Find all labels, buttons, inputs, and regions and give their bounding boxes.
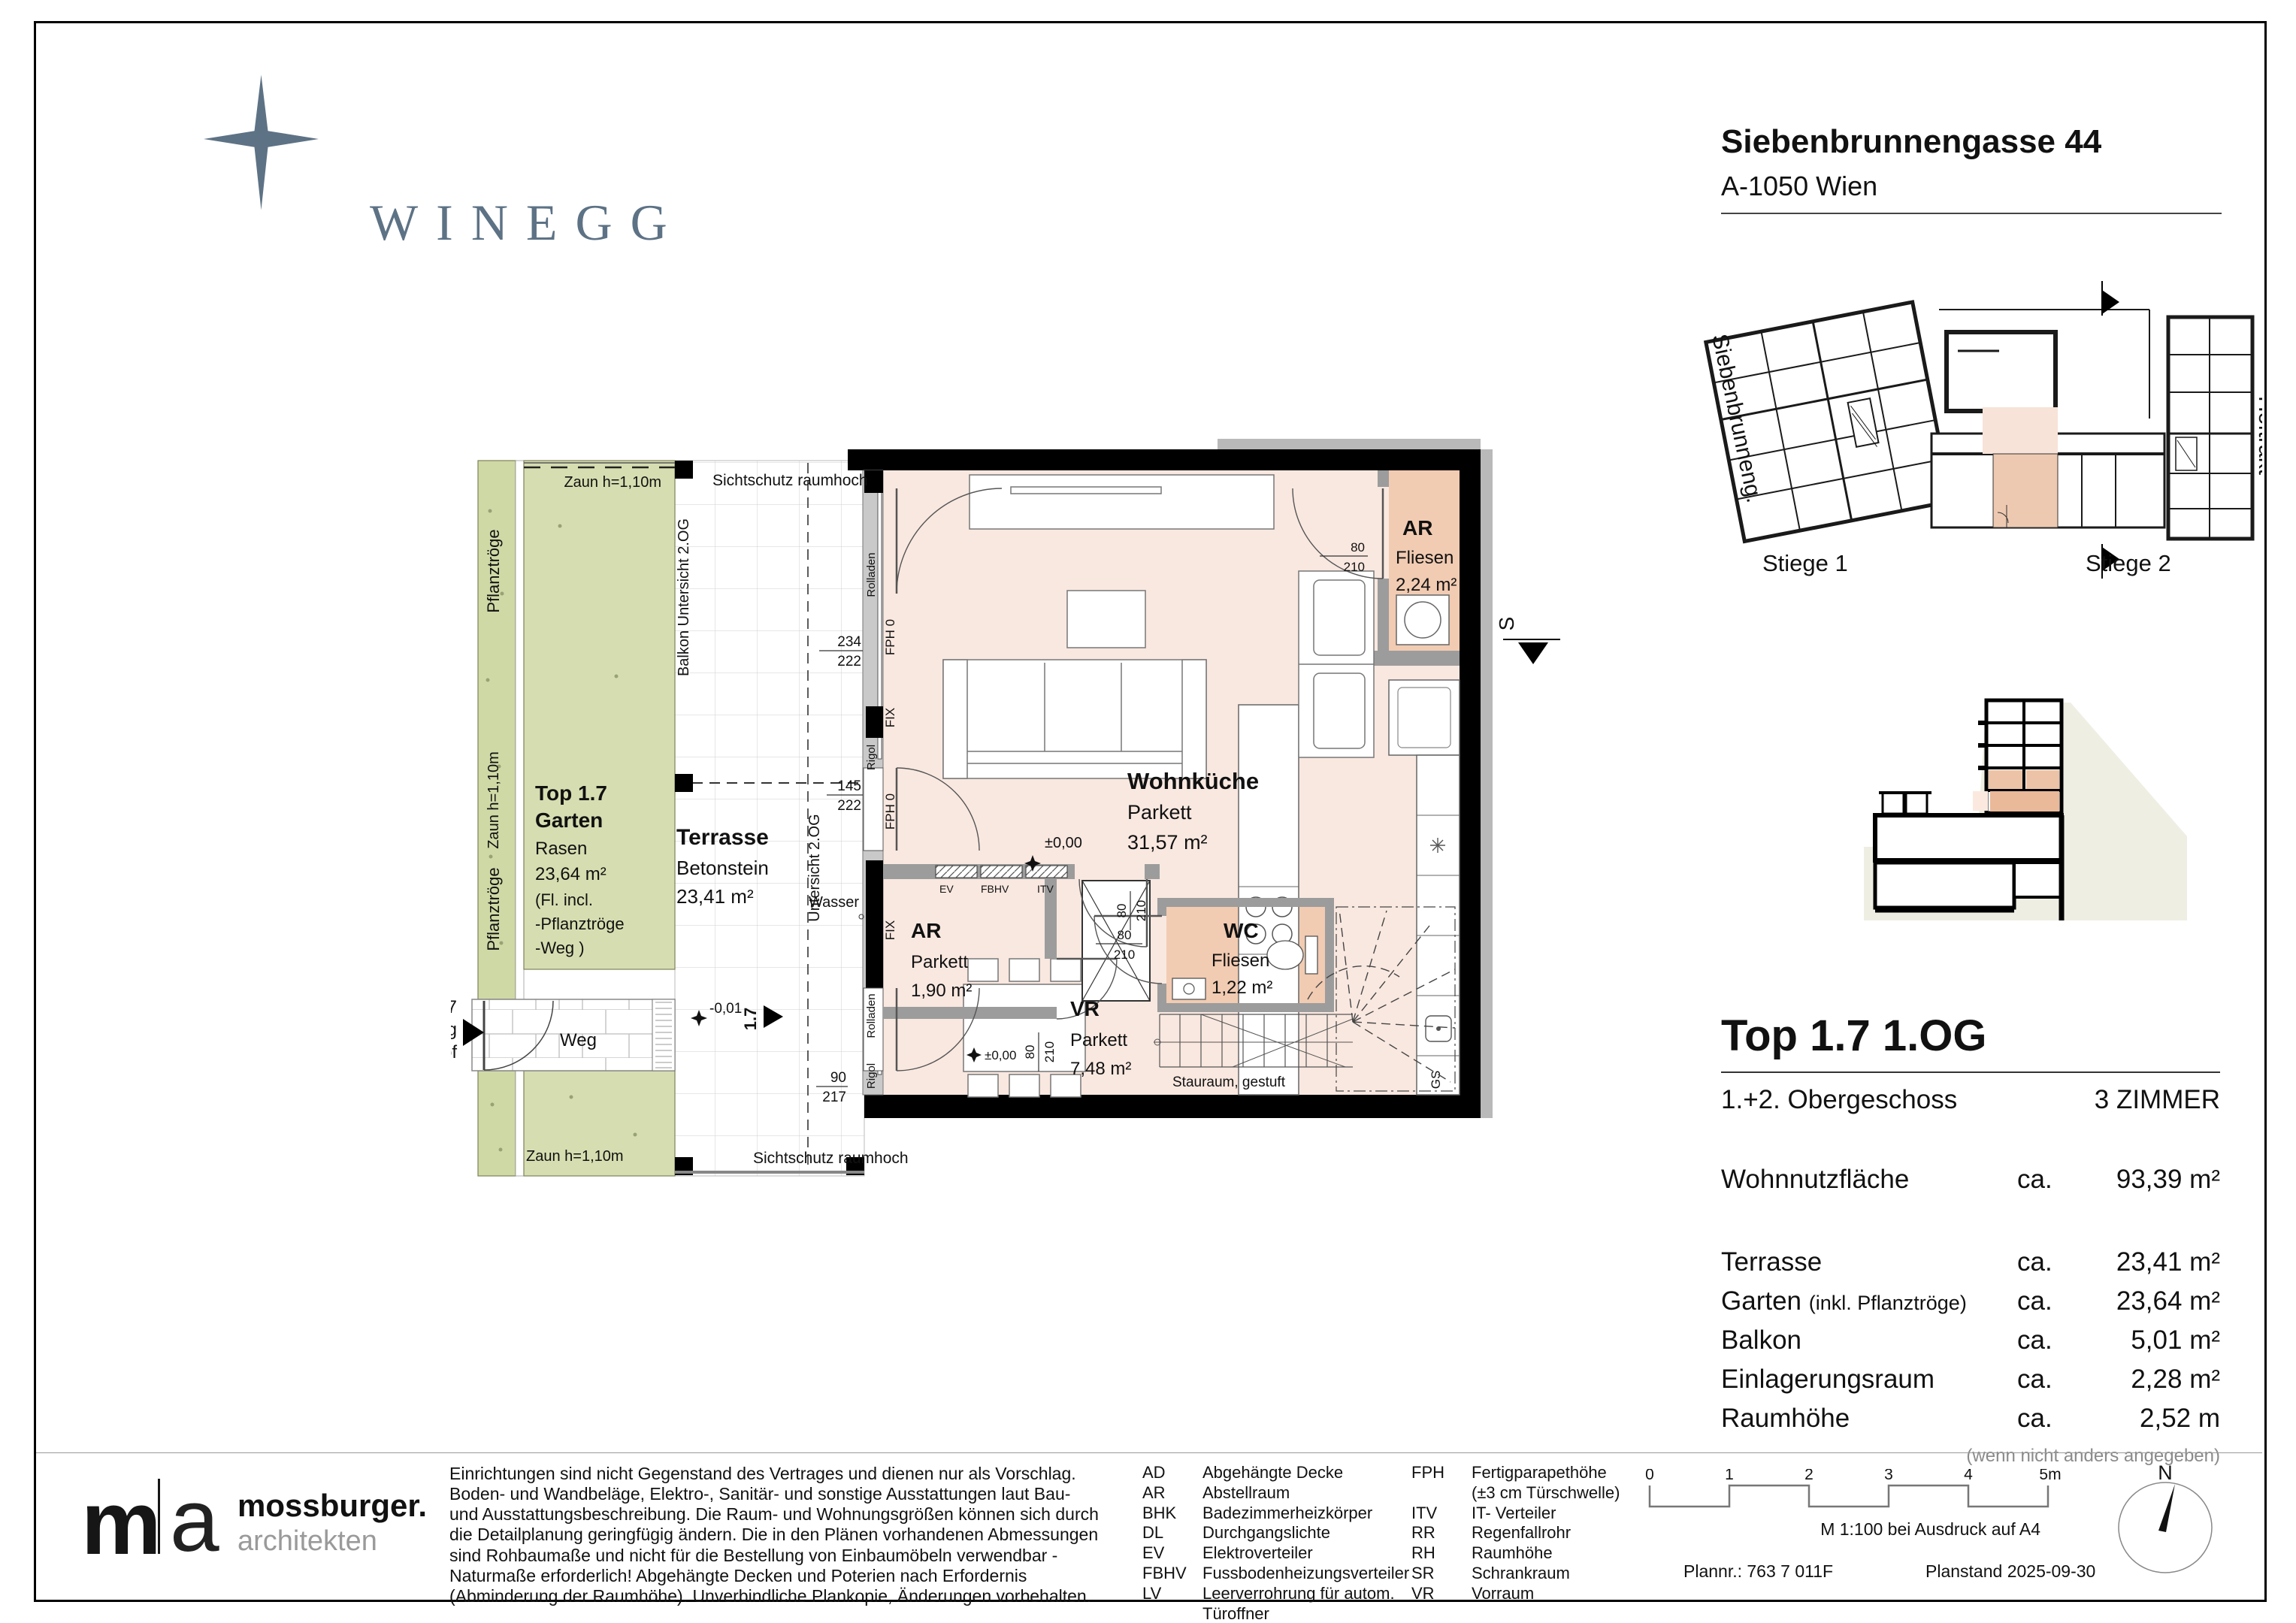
dim-80-arl: 80 [1023, 1045, 1037, 1059]
wc-area-label: 1,22 m² [1212, 978, 1272, 998]
legend-item: LVLeerverrohrung für autom. Türoffner [1142, 1584, 1458, 1623]
terrasse-label: Terrasse [676, 825, 769, 850]
ar-lower-area-label: 1,90 m² [911, 981, 972, 1001]
zugang-line3: von Innenhof [451, 1042, 457, 1062]
ar-lower-label: AR [911, 919, 941, 942]
dim-210-wc: 210 [1114, 948, 1135, 962]
architect-name: mossburger. [237, 1488, 427, 1524]
zugang-line2: Zugang [451, 1020, 457, 1040]
sideboard [970, 475, 1274, 529]
winegg-logo: WINEGG [105, 71, 631, 237]
logo-bar [158, 1479, 160, 1554]
scale-tick-4: 4 [1964, 1469, 1973, 1483]
vr-label: VR [1070, 997, 1100, 1020]
fbhv-label: FBHV [981, 883, 1009, 895]
dim-145: 145 [837, 778, 861, 794]
table-row: Garten (inkl. Pflanztröge) ca. 23,64 m² [1721, 1282, 2220, 1321]
area-value: 5,01 m² [2077, 1321, 2220, 1360]
wohnkueche-label: Wohnküche [1127, 768, 1259, 794]
table-row: Wohnnutzfläche ca. 93,39 m² [1721, 1160, 2220, 1199]
zaun-left-label: Zaun h=1,10m [486, 751, 502, 849]
scale-tick-5: 5m [2039, 1469, 2061, 1483]
area-value: 23,64 m² [2077, 1282, 2220, 1321]
dim-210-vr: 210 [1134, 900, 1148, 921]
level-zero-label: ±0,00 [1045, 835, 1082, 851]
dim-222b: 222 [837, 798, 861, 814]
site-stiege2-label: Stiege 2 [2086, 550, 2171, 576]
area-label: Garten (inkl. Pflanztröge) [1721, 1282, 2017, 1321]
address-line2: A-1050 Wien [1721, 171, 2222, 214]
level-minus-label: -0,01 [709, 1001, 742, 1017]
lounge-chairs [1299, 571, 1374, 757]
vr-floor-label: Parkett [1070, 1030, 1127, 1050]
scale-tick-0: 0 [1645, 1469, 1654, 1483]
legend-item: RRRegenfallrohr [1411, 1523, 1637, 1543]
logo-m: m [81, 1471, 162, 1575]
wohnkueche-area-label: 31,57 m² [1127, 831, 1208, 854]
coffee-table [1067, 591, 1145, 648]
pflanztroege-bottom-label: Pflanztröge [484, 867, 503, 951]
ar-lower-floor-label: Parkett [911, 952, 968, 972]
sichtschutz-bottom-label: Sichtschutz raumhoch [753, 1150, 909, 1167]
site-block-stiege2 [2168, 317, 2252, 539]
cold-appliance-icon [1430, 838, 1445, 853]
pflanztroege-top-label: Pflanztröge [484, 529, 503, 612]
scale-bar: 0 1 2 3 4 5m [1642, 1469, 2063, 1517]
address-line1: Siebenbrunnengasse 44 [1721, 124, 2222, 160]
area-label: Einlagerungsraum [1721, 1360, 2017, 1399]
zaun-bottom-label: Zaun h=1,10m [526, 1148, 624, 1165]
legend-item: DLDurchgangslichte [1142, 1523, 1458, 1543]
shaft [1082, 881, 1150, 1001]
rigol-label-1: Rigol [865, 745, 878, 770]
wc-label: WC [1224, 919, 1259, 942]
legend-item: FBHVFussbodenheizungsverteiler [1142, 1564, 1458, 1584]
plan-sheet: WINEGG Siebenbrunnengasse 44 A-1050 Wien [0, 0, 2296, 1623]
legend-item: EVElektroverteiler [1142, 1543, 1458, 1564]
legend-column-2: FPHFertigparapethöhe (±3 cm Türschwelle)… [1411, 1463, 1637, 1604]
fix-label-1: FIX [883, 708, 897, 727]
section-marker-icons [2102, 281, 2119, 579]
floor-plan: GS [451, 421, 1563, 1195]
garten-label: Garten [535, 808, 603, 832]
wohnkueche-floor-label: Parkett [1127, 801, 1192, 824]
architect-subtitle: architekten [237, 1525, 377, 1558]
area-label: Raumhöhe [1721, 1399, 2017, 1438]
rigol-label-2: Rigol [865, 1063, 878, 1089]
terrasse-area-label: 23,41 m² [676, 885, 754, 908]
zugang-line1: Top 1.7 [451, 997, 457, 1017]
rasen-label: Rasen [535, 839, 587, 859]
ar-upper-area-label: 2,24 m² [1396, 575, 1457, 595]
weg-label: Weg [560, 1030, 597, 1050]
legend-item: FPHFertigparapethöhe [1411, 1463, 1637, 1483]
tv [1011, 487, 1161, 494]
fix-label-2: FIX [883, 920, 897, 940]
unit-title: Top 1.7 1.OG [1721, 1011, 2220, 1073]
site-plan: Siebenbrunneng. Hoftrakt Stiege 1 Stiege… [1683, 280, 2262, 580]
dim-210-ar-upper: 210 [1344, 560, 1365, 574]
rolladen-label-2: Rolladen [865, 993, 878, 1038]
scale-tick-3: 3 [1884, 1469, 1893, 1483]
legend-item: SRSchrankraum [1411, 1564, 1637, 1584]
unit-info-panel: Top 1.7 1.OG 1.+2. Obergeschoss 3 ZIMMER… [1721, 1011, 2220, 1467]
star-glyph [204, 75, 319, 210]
wasser-label: Wasser [809, 894, 859, 911]
balkon-untersicht-label: Balkon Untersicht 2.OG [676, 518, 692, 676]
legend-item: ITVIT- Verteiler [1411, 1504, 1637, 1524]
legend-column-1: ADAbgehängte Decke ARAbstellraum BHKBade… [1142, 1463, 1458, 1623]
architect-logo: m a mossburger. architekten [81, 1479, 434, 1569]
dim-80-wc: 80 [1118, 928, 1132, 942]
garten-note3: -Weg ) [535, 938, 585, 957]
fph-label-2: FPH 0 [883, 793, 897, 830]
wc-floor-label: Fliesen [1212, 951, 1269, 971]
stauraum-label: Stauraum, gestuft [1172, 1074, 1286, 1090]
area-value: 2,28 m² [2077, 1360, 2220, 1399]
area-value: 23,41 m² [2077, 1243, 2220, 1282]
brand-name: WINEGG [370, 193, 685, 252]
table-row: Einlagerungsraum ca. 2,28 m² [1721, 1360, 2220, 1399]
legend-item: RHRaumhöhe [1411, 1543, 1637, 1564]
dim-90: 90 [830, 1070, 846, 1086]
legend-item: VRVorraum [1411, 1584, 1637, 1604]
level-zero-label-2: ±0,00 [985, 1048, 1016, 1062]
dim-80-ar-upper: 80 [1351, 540, 1365, 555]
legend-item: (±3 cm Türschwelle) [1411, 1483, 1637, 1504]
sichtschutz-top-label: Sichtschutz raumhoch [712, 472, 868, 489]
vr-area-label: 7,48 m² [1070, 1059, 1131, 1079]
table-row: Balkon ca. 5,01 m² [1721, 1321, 2220, 1360]
area-value: 93,39 m² [2077, 1160, 2220, 1199]
scale-tick-1: 1 [1725, 1469, 1734, 1483]
sofa [943, 660, 1206, 778]
disclaimer-text: Einrichtungen sind nicht Gegenstand des … [449, 1464, 1100, 1606]
dining-set [963, 959, 1085, 1097]
garten-area-label: 23,64 m² [535, 864, 607, 884]
rolladen-label-1: Rolladen [865, 552, 878, 597]
garten-note1: (Fl. incl. [535, 890, 593, 909]
fph-label-1: FPH 0 [883, 619, 897, 655]
logo-a: a [170, 1470, 219, 1572]
itv-label: ITV [1037, 883, 1054, 895]
table-row: Terrasse ca. 23,41 m² [1721, 1243, 2220, 1282]
dim-222a: 222 [837, 654, 861, 669]
ar-upper-floor-label: Fliesen [1396, 548, 1454, 568]
area-label: Terrasse [1721, 1243, 2017, 1282]
scale-tick-2: 2 [1804, 1469, 1814, 1483]
unit-floor: 1.+2. Obergeschoss [1721, 1085, 1957, 1115]
plan-date: Planstand 2025-09-30 [1925, 1561, 2095, 1582]
table-row: Raumhöhe ca. 2,52 m [1721, 1399, 2220, 1438]
legend-item: ARAbstellraum [1142, 1483, 1458, 1504]
plan-number: Plannr.: 763 7 011F [1683, 1561, 1833, 1582]
project-address: Siebenbrunnengasse 44 A-1050 Wien [1721, 124, 2222, 214]
site-highlight-unit [1983, 407, 2058, 527]
site-hoftrakt-label: Hoftrakt [2254, 396, 2262, 476]
zaun-top-label: Zaun h=1,10m [564, 474, 661, 491]
s-label-right: S [1495, 617, 1518, 631]
north-compass-icon: N [2109, 1460, 2222, 1580]
legend-item: ADAbgehängte Decke [1142, 1463, 1458, 1483]
site-stiege1-label: Stiege 1 [1762, 550, 1848, 576]
dim-80-vr: 80 [1115, 904, 1129, 918]
legend-item: BHKBadezimmerheizkörper [1142, 1504, 1458, 1524]
scale-note: M 1:100 bei Ausdruck auf A4 [1642, 1519, 2040, 1540]
unit-number-label: 1.7 [741, 1008, 760, 1031]
north-label: N [2158, 1461, 2173, 1484]
ar-upper-label: AR [1402, 516, 1432, 539]
area-label: Wohnnutzfläche [1721, 1160, 2017, 1199]
dim-217: 217 [822, 1090, 846, 1105]
dim-234: 234 [837, 634, 861, 650]
footer-divider [36, 1452, 2262, 1453]
area-value: 2,52 m [2077, 1399, 2220, 1438]
area-label: Balkon [1721, 1321, 2017, 1360]
ev-label: EV [939, 883, 954, 895]
gs-label: GS [1429, 1071, 1443, 1090]
unit-rooms: 3 ZIMMER [2095, 1085, 2220, 1115]
garten-note2: -Pflanztröge [535, 914, 625, 933]
betonstein-label: Betonstein [676, 857, 769, 879]
building-section [1864, 672, 2255, 996]
south-arrow-right: S [1495, 617, 1560, 664]
dim-210-arl: 210 [1042, 1041, 1057, 1062]
garten-top-label: Top 1.7 [535, 781, 607, 805]
terrace [675, 461, 864, 1176]
area-table: Wohnnutzfläche ca. 93,39 m² Terrasse ca.… [1721, 1160, 2220, 1438]
